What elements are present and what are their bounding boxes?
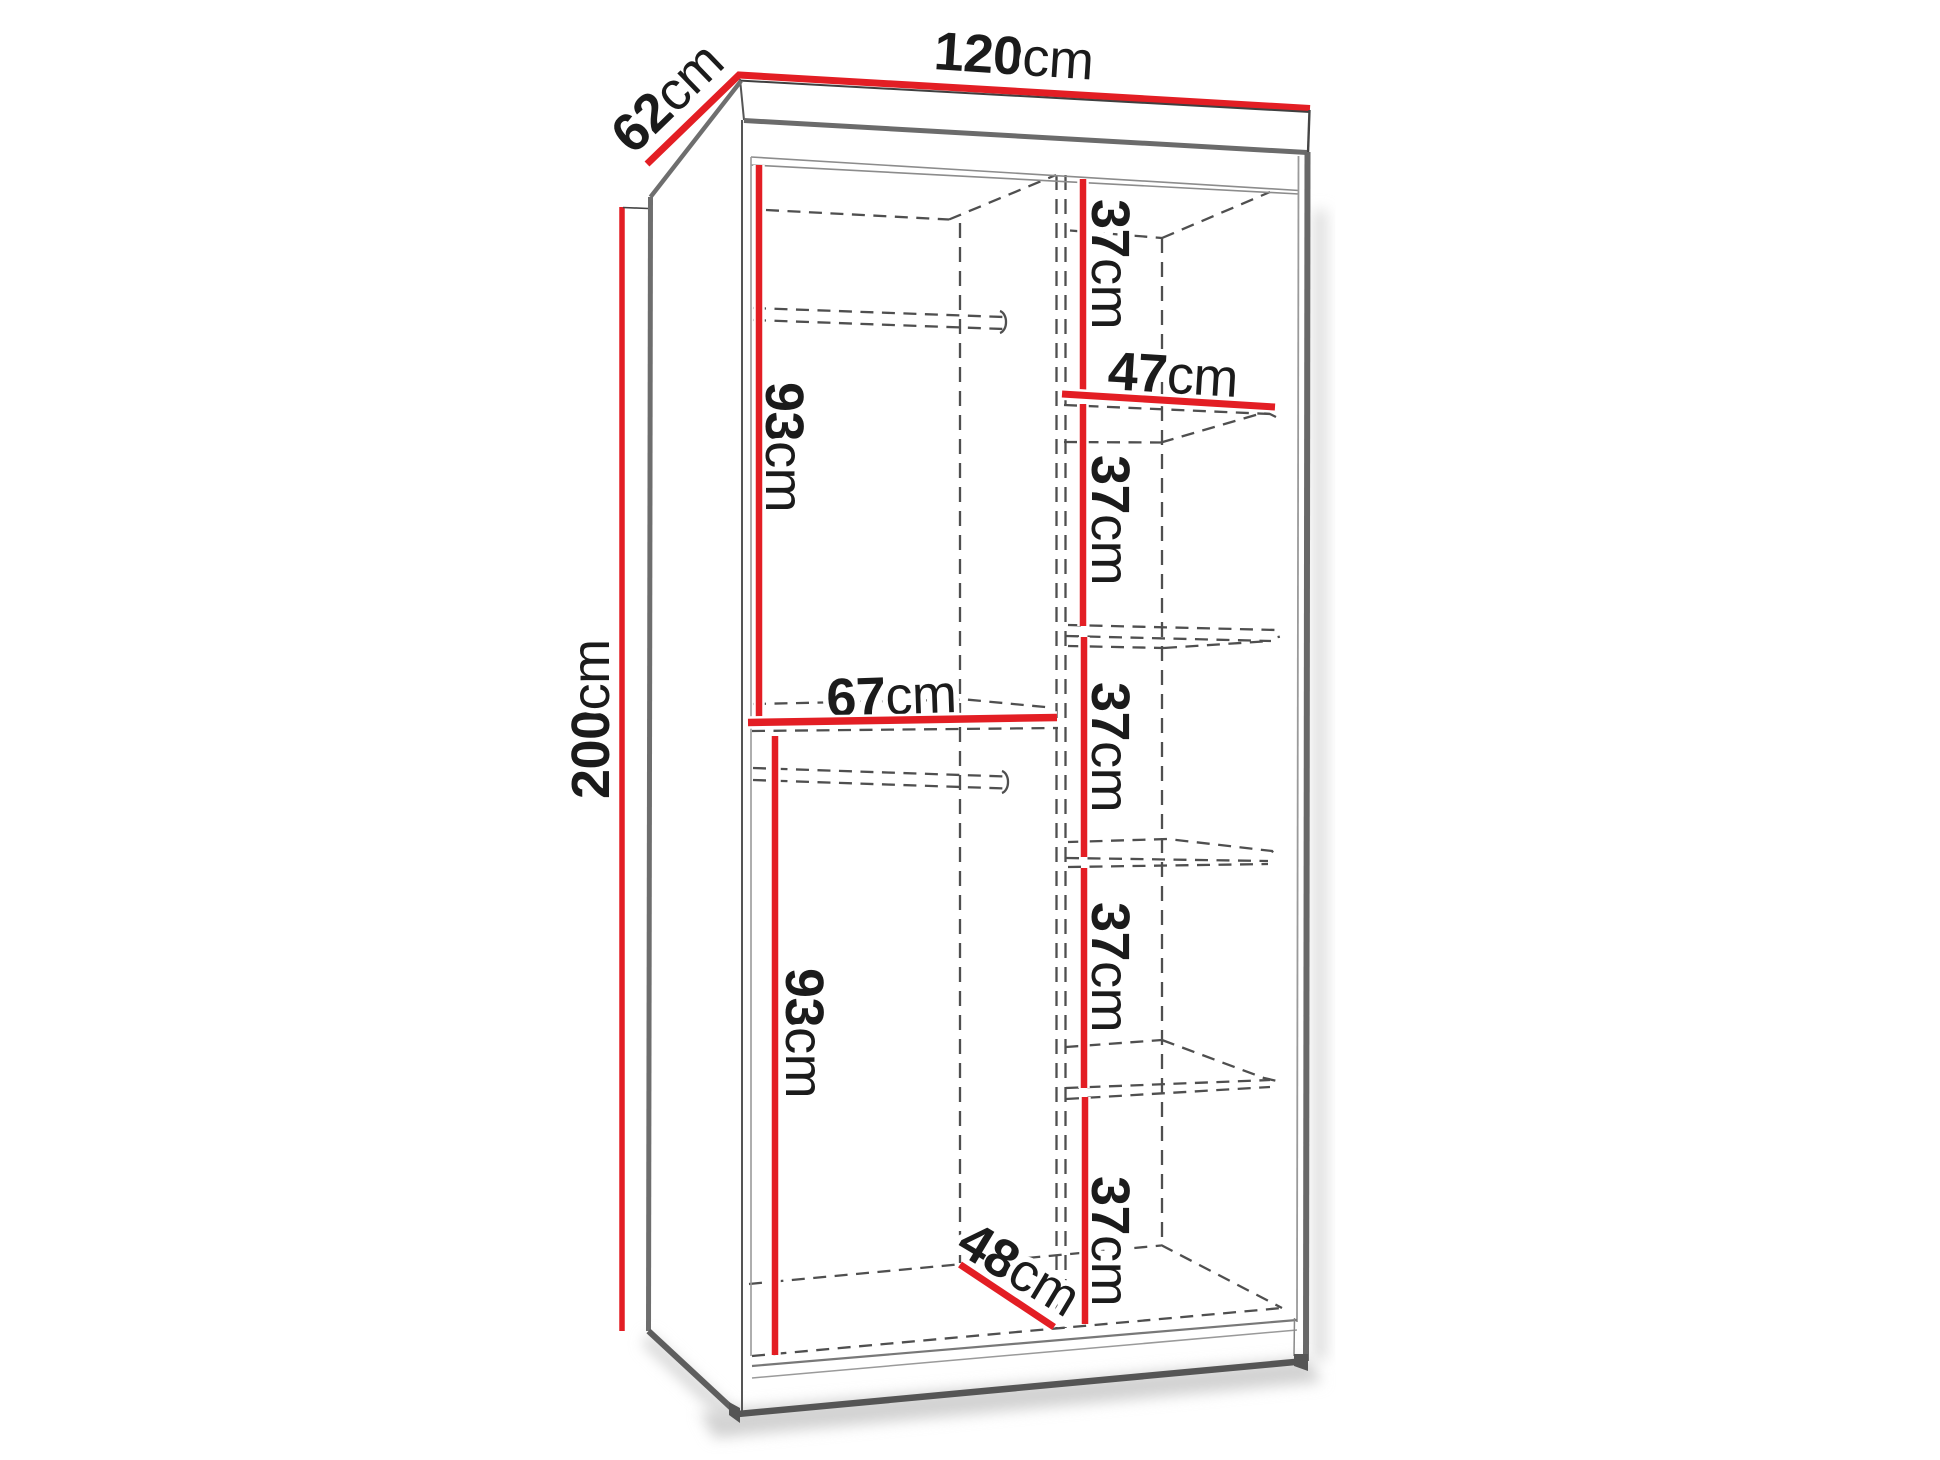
svg-text:37cm: 37cm [1080, 455, 1140, 585]
svg-text:200cm: 200cm [561, 639, 621, 799]
svg-text:120cm: 120cm [932, 21, 1095, 91]
svg-text:37cm: 37cm [1080, 199, 1140, 329]
svg-text:93cm: 93cm [774, 968, 834, 1098]
